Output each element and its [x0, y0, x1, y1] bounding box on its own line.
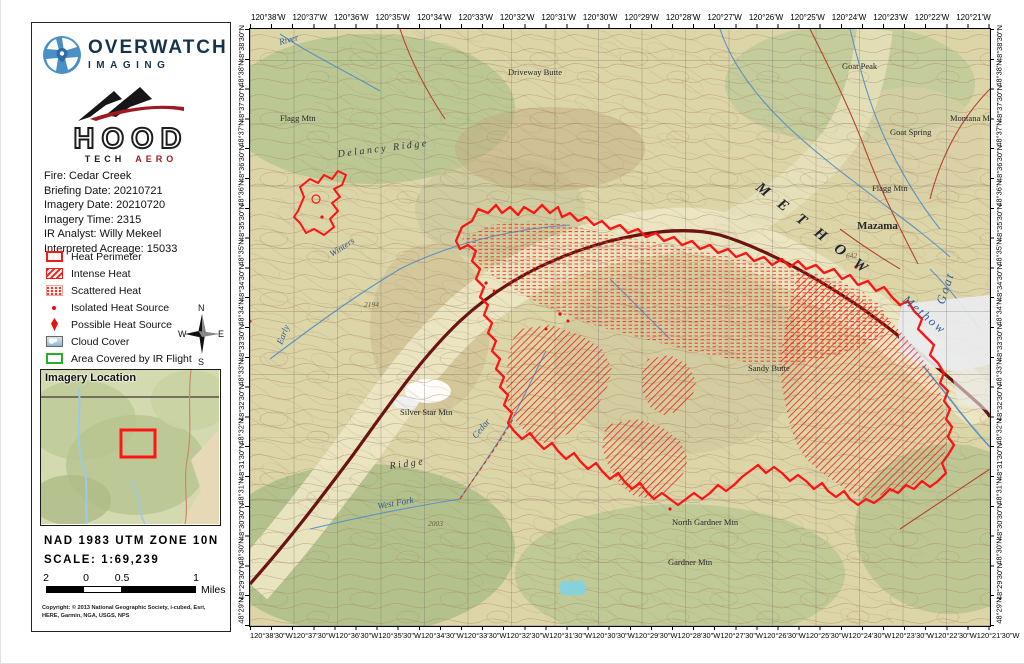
overwatch-wordmark: OVERWATCH IMAGING	[88, 35, 228, 71]
scale-tick-label: 0.5	[115, 572, 130, 584]
longitude-label: 120°34'W	[417, 13, 452, 22]
legend-item: Cloud Cover	[46, 335, 192, 348]
map-label-flagg-mtn: Flagg Mtn	[280, 113, 316, 123]
copyright-text: Copyright: © 2013 National Geographic So…	[42, 605, 224, 620]
longitude-label: 120°30'30"W	[592, 631, 635, 640]
ir-flight-area-swatch	[46, 353, 63, 364]
latitude-label: 48°36'30"N	[995, 145, 1004, 182]
inset-title: Imagery Location	[45, 372, 136, 384]
longitude-label: 120°36'30"W	[336, 631, 379, 640]
legend-item: Intense Heat	[46, 267, 192, 280]
legend-label: Possible Heat Source	[71, 319, 172, 331]
heat-perimeter-swatch	[46, 251, 63, 262]
latitude-label: 48°33'N	[995, 359, 1004, 385]
longitude-label: 120°36'W	[334, 13, 369, 22]
fire-info: Fire: Cedar CreekBriefing Date: 20210721…	[44, 169, 177, 256]
latitude-label: 48°32'30"N	[995, 384, 1004, 421]
longitude-label: 120°24'30"W	[849, 631, 892, 640]
longitude-label: 120°22'30"W	[934, 631, 977, 640]
latitude-label: 48°30'30"N	[995, 503, 1004, 540]
compass-south-label: S	[198, 357, 204, 367]
longitude-label: 120°33'30"W	[464, 631, 507, 640]
fire-info-line: Imagery Time: 2315	[44, 213, 177, 228]
intense-heat-swatch	[46, 268, 63, 279]
scale-bar-ticks: 00.512	[46, 572, 228, 584]
map-label-2003: 2003	[428, 519, 443, 528]
longitude-label: 120°21'W	[956, 13, 991, 22]
longitude-label: 120°28'30"W	[678, 631, 721, 640]
overwatch-logo: OVERWATCH IMAGING	[42, 35, 228, 75]
legend-item: Isolated Heat Source	[46, 301, 192, 314]
longitude-label: 120°27'W	[707, 13, 742, 22]
scattered-heat-swatch	[46, 285, 63, 296]
longitude-label: 120°38'W	[251, 13, 286, 22]
latitude-label: 48°36'N	[995, 180, 1004, 206]
legend-label: Isolated Heat Source	[71, 302, 169, 314]
scale-tick-label: 0	[83, 572, 89, 584]
longitude-labels-top: 120°38'W120°37'W120°36'W120°35'W120°34'W…	[250, 13, 992, 22]
latitude-label: 48°37'30"N	[995, 85, 1004, 122]
latitude-label: 48°35'N	[995, 240, 1004, 266]
scale-text: SCALE: 1:69,239	[44, 554, 159, 566]
legend-label: Cloud Cover	[71, 336, 129, 348]
longitude-labels-bottom: 120°38'30"W120°37'30"W120°36'30"W120°35'…	[250, 631, 990, 640]
legend-label: Heat Perimeter	[71, 251, 142, 263]
longitude-label: 120°35'W	[375, 13, 410, 22]
longitude-label: 120°26'30"W	[763, 631, 806, 640]
longitude-label: 120°32'30"W	[507, 631, 550, 640]
scale-bar: 00.512 Miles	[46, 572, 228, 593]
fire-info-line: Imagery Date: 20210720	[44, 198, 177, 213]
longitude-label: 120°32'W	[500, 13, 535, 22]
map-label-mazama: Mazama	[857, 220, 898, 232]
longitude-label: 120°35'30"W	[378, 631, 421, 640]
isolated-heat-source-swatch	[46, 302, 63, 313]
latitude-label: 48°38'30"N	[995, 25, 1004, 62]
latitude-label: 48°32'N	[995, 419, 1004, 445]
longitude-label: 120°25'30"W	[806, 631, 849, 640]
hood-wordmark: HOOD	[32, 126, 230, 152]
legend-item: Area Covered by IR Flight	[46, 352, 192, 365]
map-canvas: RiverDelancy RidgeFlagg MtnDriveway Butt…	[249, 28, 991, 627]
scale-tick-label: 1	[193, 572, 199, 584]
overwatch-name: OVERWATCH	[88, 37, 228, 59]
sidebar: OVERWATCH IMAGING HOOD TECHAERO Fire: Ce…	[31, 22, 231, 632]
longitude-label: 120°33'W	[458, 13, 493, 22]
map-label-sandy-butte: Sandy Butte	[748, 363, 790, 373]
longitude-label: 120°23'W	[873, 13, 908, 22]
scale-unit-label: Miles	[201, 584, 226, 596]
map-label-north-gardner-mtn: North Gardner Mtn	[672, 517, 739, 527]
longitude-label: 120°37'W	[292, 13, 327, 22]
longitude-label: 120°37'30"W	[293, 631, 336, 640]
fire-info-line: IR Analyst: Willy Mekeel	[44, 227, 177, 242]
possible-heat-source-swatch	[46, 319, 63, 330]
map-label-goat-spring: Goat Spring	[890, 127, 932, 137]
longitude-label: 120°21'30"W	[977, 631, 1020, 640]
latitude-label: 48°34'30"N	[995, 264, 1004, 301]
longitude-label: 120°28'W	[666, 13, 701, 22]
latitude-label: 48°30'N	[995, 538, 1004, 564]
longitude-label: 120°24'W	[832, 13, 867, 22]
longitude-label: 120°29'30"W	[635, 631, 678, 640]
latitude-label: 48°29'30"N	[995, 563, 1004, 600]
longitude-label: 120°30'W	[583, 13, 618, 22]
latitude-labels-right: 48°38'30"N48°38'N48°37'30"N48°37'N48°36'…	[993, 29, 1005, 626]
latitude-label: 48°31'30"N	[995, 443, 1004, 480]
longitude-label: 120°38'30"W	[250, 631, 293, 640]
longitude-label: 120°27'30"W	[720, 631, 763, 640]
latitude-label: 48°34'N	[995, 299, 1004, 325]
topo-map: RiverDelancy RidgeFlagg MtnDriveway Butt…	[250, 29, 990, 626]
latitude-label: 48°37'N	[995, 120, 1004, 146]
longitude-label: 120°31'W	[541, 13, 576, 22]
compass-north-label: N	[198, 303, 205, 313]
longitude-label: 120°22'W	[915, 13, 950, 22]
longitude-label: 120°23'30"W	[891, 631, 934, 640]
longitude-label: 120°31'30"W	[549, 631, 592, 640]
hood-mountains-icon	[56, 85, 206, 125]
map-label-driveway-butte: Driveway Butte	[508, 67, 562, 77]
map-label-silver-star-mtn: Silver Star Mtn	[400, 407, 453, 417]
legend: Heat Perimeter Intense Heat Scattered He…	[46, 250, 192, 365]
legend-label: Area Covered by IR Flight	[71, 353, 192, 365]
fire-info-line: Fire: Cedar Creek	[44, 169, 177, 184]
legend-item: Possible Heat Source	[46, 318, 192, 331]
hood-aero-text: AERO	[135, 154, 177, 164]
legend-label: Intense Heat	[71, 268, 131, 280]
scale-bar-graphic	[46, 586, 196, 593]
latitude-label: 48°29'N	[995, 598, 1004, 624]
overwatch-aperture-icon	[42, 35, 82, 75]
compass-star-icon	[185, 314, 219, 354]
map-label-2194: 2194	[364, 300, 379, 309]
fire-map-page: OVERWATCH IMAGING HOOD TECHAERO Fire: Ce…	[0, 0, 1024, 664]
longitude-label: 120°29'W	[624, 13, 659, 22]
map-label-gardner-mtn: Gardner Mtn	[668, 557, 713, 567]
map-label-montana-mine: Montana Mine	[950, 113, 990, 123]
latitude-label: 48°35'30"N	[995, 204, 1004, 241]
longitude-label: 120°34'30"W	[421, 631, 464, 640]
longitude-label: 120°26'W	[749, 13, 784, 22]
latitude-label: 48°33'30"N	[995, 324, 1004, 361]
compass-rose: N W E S	[178, 303, 226, 367]
legend-item: Scattered Heat	[46, 284, 192, 297]
map-label-flagg-mtn: Flagg Mtn	[872, 183, 908, 193]
latitude-label: 48°38'N	[995, 61, 1004, 87]
longitude-label: 120°25'W	[790, 13, 825, 22]
hoodtech-logo: HOOD TECHAERO	[32, 85, 230, 164]
hood-subbrand: TECHAERO	[32, 154, 230, 164]
cloud-cover-swatch	[46, 336, 63, 347]
latitude-label: 48°31'N	[995, 479, 1004, 505]
imagery-location-inset: Imagery Location	[40, 369, 221, 526]
scale-tick-label: 2	[43, 572, 49, 584]
datum-text: NAD 1983 UTM ZONE 10N	[44, 535, 219, 547]
fire-info-line: Briefing Date: 20210721	[44, 184, 177, 199]
inset-map	[41, 370, 219, 524]
hood-tech-text: TECH	[85, 154, 126, 164]
legend-label: Scattered Heat	[71, 285, 141, 297]
map-label-goat-peak: Goat Peak	[842, 61, 878, 71]
legend-item: Heat Perimeter	[46, 250, 192, 263]
overwatch-subname: IMAGING	[88, 60, 228, 71]
map-label-642: 642	[846, 251, 858, 260]
